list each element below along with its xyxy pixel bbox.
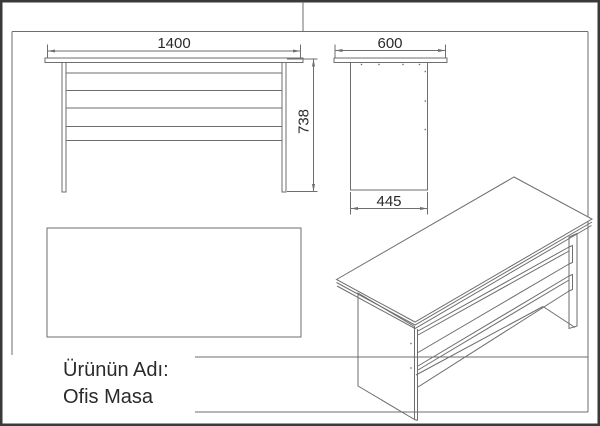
front-view — [45, 45, 318, 193]
dim-overall-height-lines — [287, 59, 318, 192]
title-block-frame — [195, 357, 588, 412]
technical-drawing-sheet: 1400 600 738 445 Ürünün Adı: Ofis Masa — [0, 0, 600, 426]
dim-top-depth-lines — [335, 45, 446, 58]
dim-panel-depth-lines — [351, 192, 428, 215]
plan-view — [47, 228, 301, 337]
side-view — [334, 45, 447, 215]
dim-front-width-lines — [48, 45, 301, 59]
drawing-canvas — [0, 0, 600, 426]
perspective-view — [337, 177, 593, 421]
